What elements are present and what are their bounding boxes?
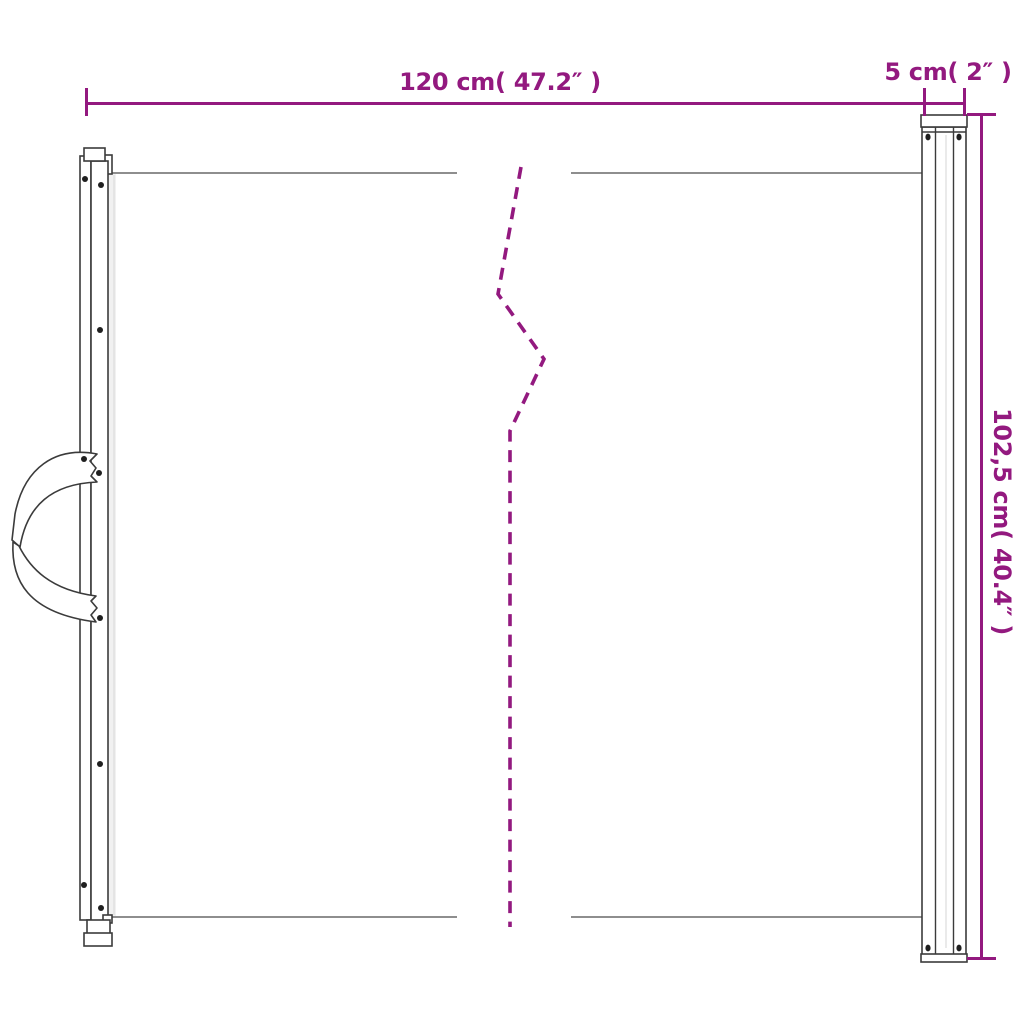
- left-post-foot: [84, 933, 112, 946]
- screw: [97, 615, 103, 621]
- cassette-body: [922, 127, 966, 955]
- screw: [98, 182, 104, 188]
- left-post-top-cap: [84, 148, 105, 161]
- screw: [97, 761, 103, 767]
- dimension-diagram: 120 cm( 47.2″ ) 5 cm( 2″ ) 102,5 cm( 40.…: [0, 0, 1024, 1024]
- screw: [925, 134, 930, 141]
- break-dashed-polyline: [498, 167, 544, 927]
- left-post-inner-rail: [91, 161, 108, 925]
- cassette-bottom-cap: [921, 954, 967, 962]
- mesh-edge-lines: [111, 173, 922, 917]
- screw: [96, 470, 102, 476]
- cassette-width-dimension-label: 5 cm( 2″ ): [868, 58, 1024, 86]
- screw: [98, 905, 104, 911]
- width-dimension-label: 120 cm( 47.2″ ): [95, 68, 905, 96]
- screw: [956, 134, 961, 141]
- break-dashed-line: [498, 167, 544, 927]
- screw: [925, 945, 930, 952]
- left-post-foot-stem: [87, 920, 110, 934]
- left-post-outer-rail: [80, 156, 91, 920]
- diagram-line-art: [0, 0, 1024, 1024]
- screw: [81, 882, 87, 888]
- dimension-lines: [85, 88, 996, 960]
- mesh-left-shading: [108, 174, 116, 916]
- left-post: [80, 148, 112, 946]
- cassette-top-cap: [921, 115, 967, 127]
- screw: [82, 176, 88, 182]
- height-dimension-label: 102,5 cm( 40.4″ ): [988, 408, 1016, 635]
- right-post: [921, 115, 967, 962]
- mesh-panel: [108, 174, 116, 916]
- screw: [81, 456, 87, 462]
- screw: [956, 945, 961, 952]
- screw: [97, 327, 103, 333]
